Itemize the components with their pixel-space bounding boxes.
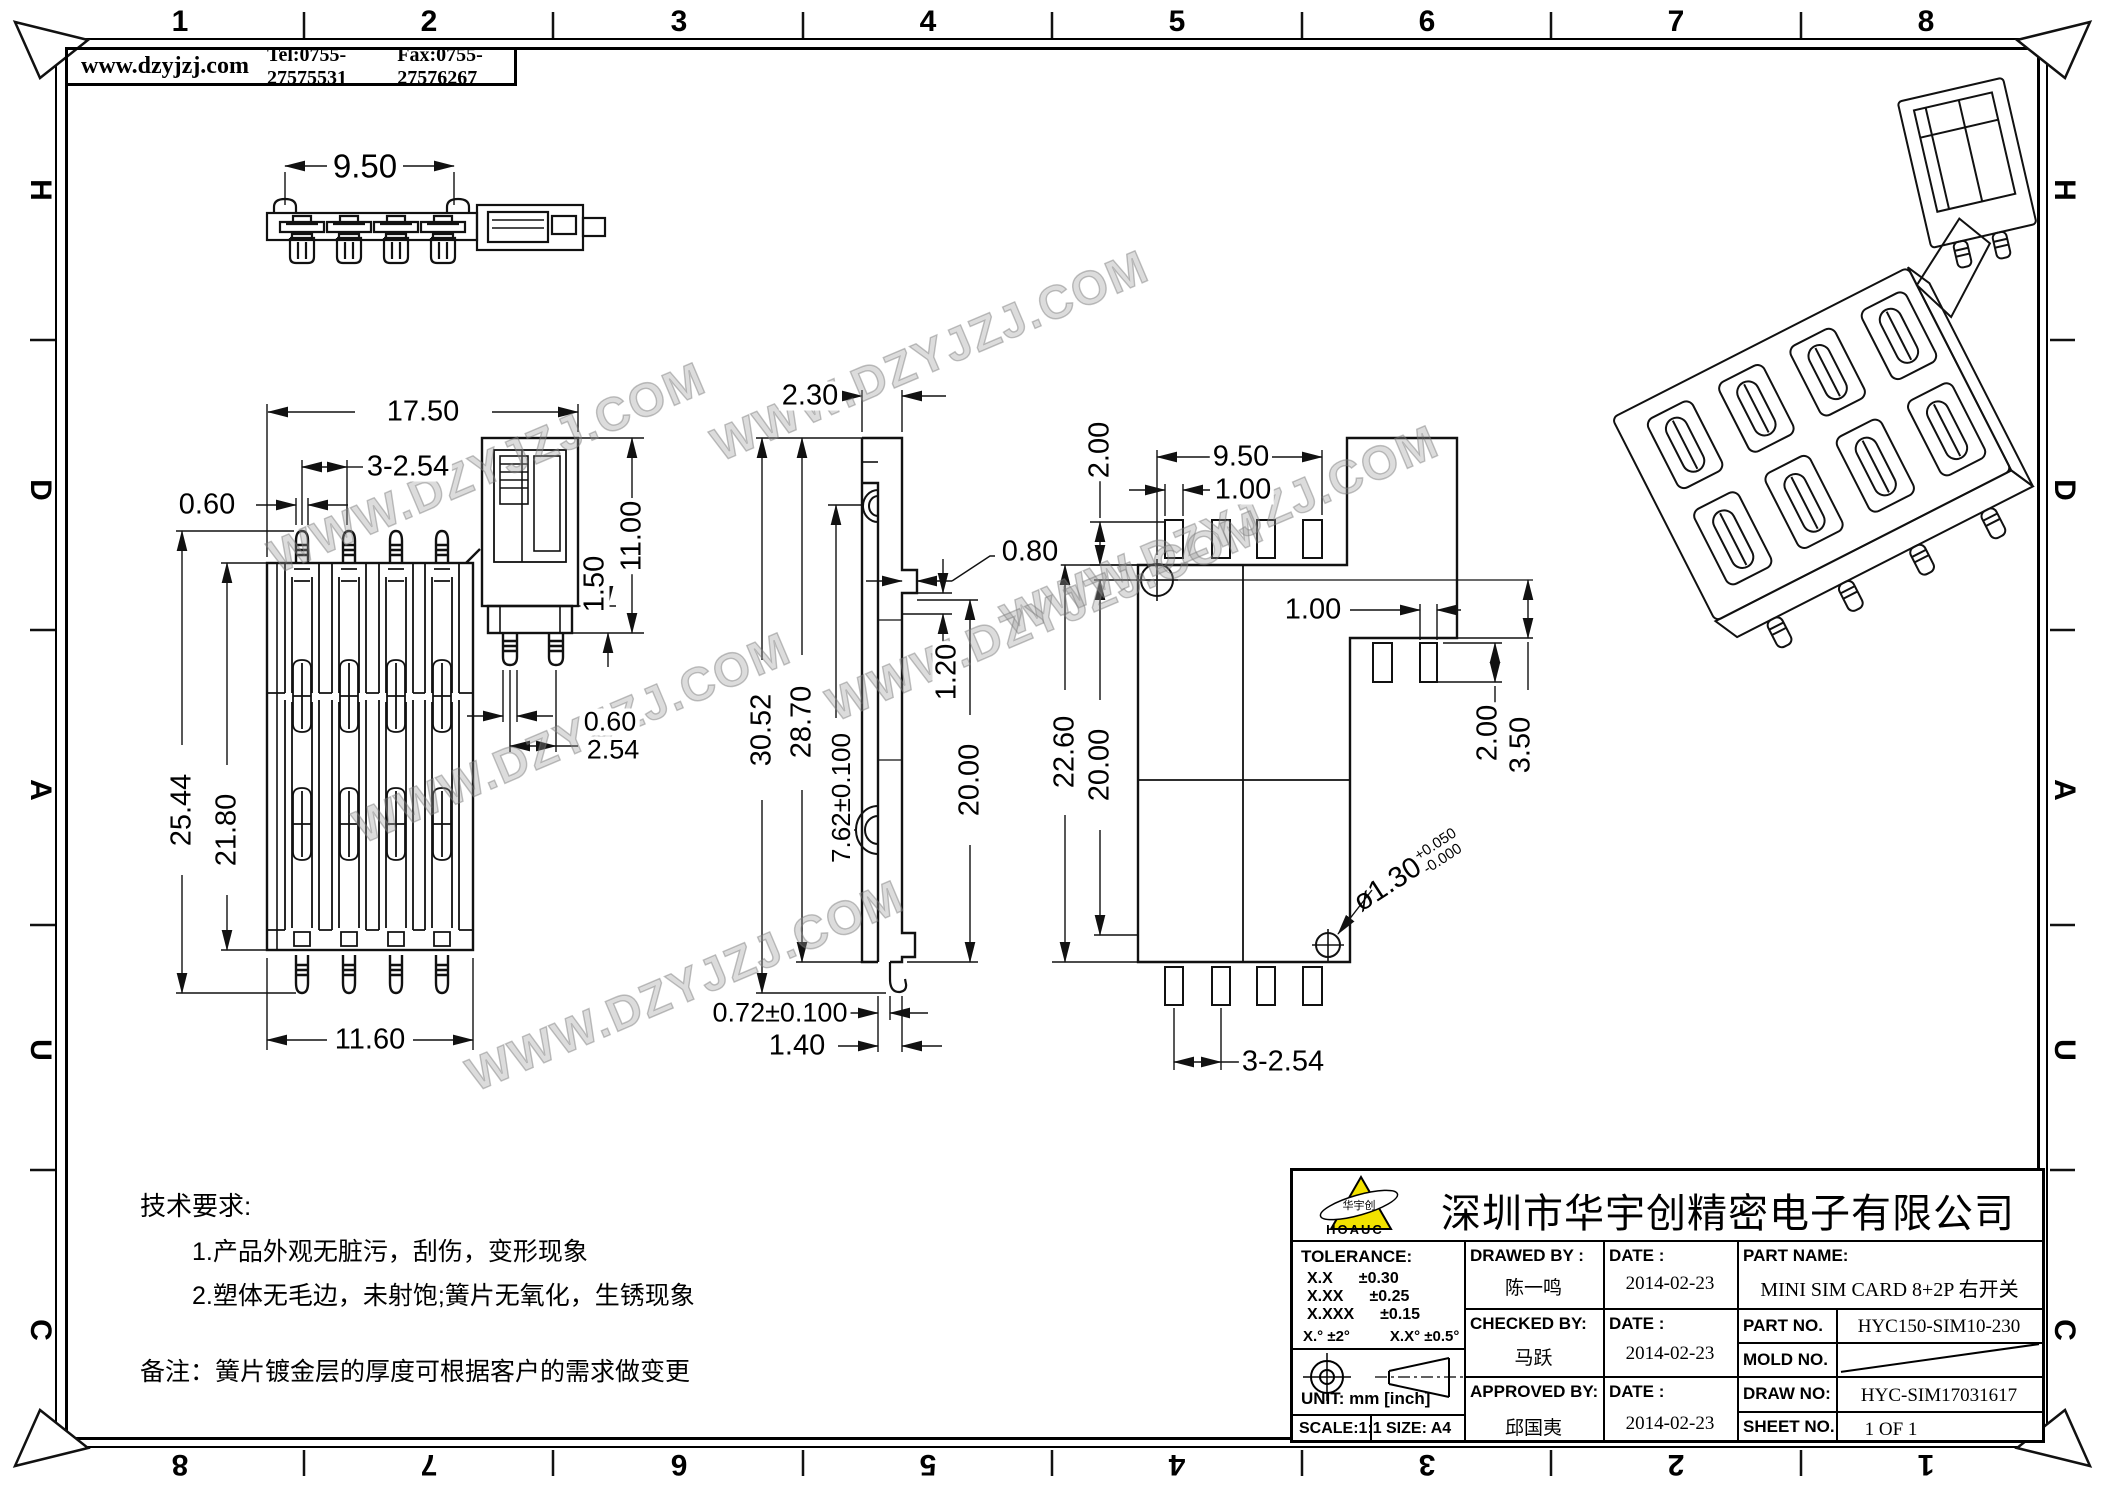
dim-side-2-30: 2.30 (779, 382, 841, 411)
date-label-3: DATE : (1609, 1382, 1664, 1402)
part-name-label: PART NAME: (1743, 1246, 1848, 1266)
company-name: 深圳市华宇创精密电子有限公司 (1418, 1181, 2038, 1239)
view-isometric (1543, 54, 2105, 669)
date-value-2: 2014-02-23 (1603, 1343, 1737, 1365)
dim-fp-22-60: 22.60 (1051, 713, 1080, 792)
dim-side-30-52: 30.52 (748, 691, 777, 770)
approved-by-label: APPROVED BY: (1470, 1382, 1598, 1402)
dim-front-0-60b: 0.60 (581, 709, 640, 736)
dim-front-3-2-54: 3-2.54 (364, 453, 452, 482)
dim-side-20-00: 20.00 (956, 741, 985, 820)
tech-note-2: 2.塑体无毛边，未射饱;簧片无氧化，生锈现象 (192, 1276, 695, 1312)
approved-by-name: 邱国夷 (1464, 1413, 1603, 1440)
dim-front-17-50: 17.50 (384, 398, 463, 427)
part-name-value: MINI SIM CARD 8+2P 右开关 (1737, 1273, 2042, 1302)
mold-no-diagonal (1841, 1343, 2039, 1373)
dim-fp-20-00: 20.00 (1086, 726, 1115, 805)
drawed-by-label: DRAWED BY : (1470, 1246, 1584, 1266)
checked-by-name: 马跃 (1464, 1343, 1603, 1370)
dim-side-7-62: 7.62±0.100 (828, 730, 854, 866)
part-no-label: PART NO. (1743, 1316, 1823, 1336)
scale-label: SCALE:1:1 (1299, 1420, 1382, 1438)
tolerance-row: X.X±0.30 (1307, 1270, 1399, 1288)
tolerance-label: TOLERANCE: (1301, 1247, 1412, 1267)
drawed-by-name: 陈一鸣 (1464, 1273, 1603, 1300)
draw-no-value: HYC-SIM17031617 (1836, 1385, 2042, 1407)
svg-text:华宇创: 华宇创 (1343, 1198, 1376, 1212)
draw-no-label: DRAW NO: (1743, 1384, 1831, 1404)
tech-notes-title: 技术要求: (140, 1186, 251, 1223)
mold-no-label: MOLD NO. (1743, 1350, 1828, 1370)
unit-label: UNIT: mm [inch] (1301, 1389, 1430, 1409)
dim-front-11-00: 11.00 (618, 498, 647, 574)
date-label-1: DATE : (1609, 1246, 1664, 1266)
dim-side-1-40: 1.40 (766, 1032, 828, 1061)
date-value-1: 2014-02-23 (1603, 1273, 1737, 1295)
date-value-3: 2014-02-23 (1603, 1413, 1737, 1435)
sheet-no-label: SHEET NO. (1743, 1417, 1835, 1437)
dim-fp-3-2-54: 3-2.54 (1239, 1048, 1327, 1077)
dim-side-0-80: 0.80 (999, 538, 1061, 567)
view-top-small (267, 166, 605, 263)
dim-front-0-60: 0.60 (176, 491, 238, 520)
dim-front-21-80: 21.80 (213, 791, 242, 870)
checked-by-label: CHECKED BY: (1470, 1314, 1587, 1334)
dim-side-1-20: 1.20 (933, 641, 962, 703)
logo-text: HOAUC (1307, 1222, 1403, 1237)
dim-fp-1-00-right: 1.00 (1282, 596, 1344, 625)
date-label-2: DATE : (1609, 1314, 1664, 1334)
dim-top-9-50: 9.50 (330, 150, 400, 183)
header-contact-box: www.dzyjzj.com Tel:0755-27575531 Fax:075… (65, 47, 517, 86)
dim-side-28-70: 28.70 (788, 683, 817, 762)
dim-front-25-44: 25.44 (168, 771, 197, 850)
title-block: 华宇创 HOAUC 深圳市华宇创精密电子有限公司 TOLERANCE: X.X±… (1290, 1168, 2045, 1443)
tech-note-remark: 备注：簧片镀金层的厚度可根据客户的需求做变更 (140, 1352, 690, 1388)
dim-fp-2-00-left: 2.00 (1086, 419, 1115, 481)
tel-text: Tel:0755-27575531 (267, 44, 379, 90)
website-text: www.dzyjzj.com (81, 53, 249, 80)
sheet-no-value: 1 OF 1 (1836, 1419, 1946, 1441)
dim-fp-2-00-right: 2.00 (1474, 702, 1503, 764)
dim-front-11-60: 11.60 (332, 1026, 408, 1055)
dim-fp-3-50: 3.50 (1507, 714, 1536, 776)
tech-note-1: 1.产品外观无脏污，刮伤，变形现象 (192, 1232, 588, 1268)
drawing-sheet: WWW.DZYJZJ.COM WWW.DZYJZJ.COM WWW.DZYJZJ… (0, 0, 2105, 1488)
size-label: SIZE: A4 (1386, 1420, 1451, 1438)
dim-front-1-50: 1.50 (581, 553, 610, 615)
dim-fp-9-50: 9.50 (1210, 443, 1272, 472)
fax-text: Fax:0755-27576267 (397, 44, 514, 90)
tolerance-angles: X.° ±2°X.X° ±0.5° (1303, 1328, 1459, 1345)
tolerance-row: X.XX±0.25 (1307, 1288, 1409, 1306)
part-no-value: HYC150-SIM10-230 (1836, 1316, 2042, 1338)
dim-side-0-72: 0.72±0.100 (710, 1000, 851, 1027)
dim-front-2-54: 2.54 (584, 737, 643, 764)
tolerance-row: X.XXX±0.15 (1307, 1306, 1420, 1324)
view-footprint (1052, 438, 1533, 1070)
dim-fp-1-00-top: 1.00 (1212, 476, 1274, 505)
